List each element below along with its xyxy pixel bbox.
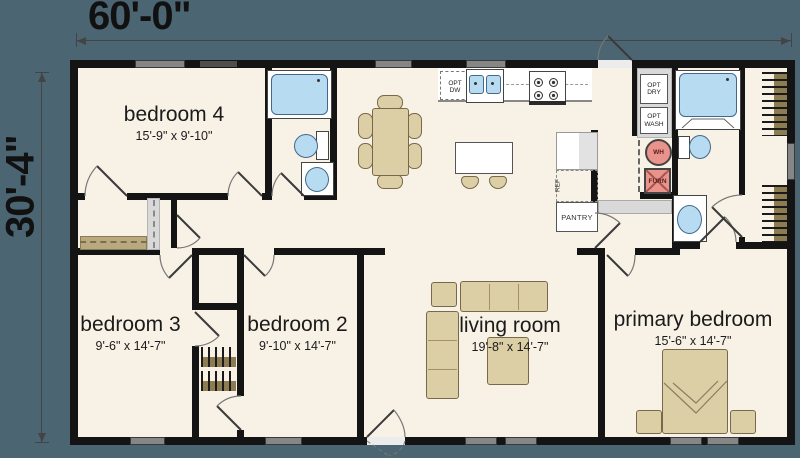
room-dims: 15'-6" x 14'-7" bbox=[603, 334, 783, 348]
door-arc bbox=[177, 238, 200, 248]
door-leaf bbox=[97, 166, 127, 196]
door-arc bbox=[272, 173, 281, 196]
rear-door-leaf bbox=[608, 36, 632, 60]
height-arrow-down-icon bbox=[38, 433, 46, 442]
door-leaf bbox=[700, 217, 725, 242]
height-arrow-up-icon bbox=[38, 73, 46, 82]
room-label-living-room: living room 19'-8" x 14'-7" bbox=[420, 314, 600, 354]
floor-plan: 60'-0" 30'-4" bedroom 4 15'-9" x 9'-10" … bbox=[0, 0, 800, 458]
door-leaf bbox=[217, 406, 241, 430]
height-dimension-label: 30'-4" bbox=[2, 88, 40, 238]
door-leaf bbox=[238, 172, 262, 196]
front-door-outswing-arc bbox=[389, 441, 405, 456]
door-leaf bbox=[281, 173, 304, 196]
room-dims: 19'-8" x 14'-7" bbox=[420, 340, 600, 354]
room-name: bedroom 3 bbox=[48, 313, 213, 337]
door-leaf bbox=[607, 255, 628, 276]
room-label-bedroom-2: bedroom 2 9'-10" x 14'-7" bbox=[215, 313, 380, 353]
room-label-bedroom-3: bedroom 3 9'-6" x 14'-7" bbox=[48, 313, 213, 353]
room-name: living room bbox=[420, 314, 600, 338]
room-name: bedroom 4 bbox=[84, 103, 264, 127]
door-leaf bbox=[177, 215, 200, 238]
room-dims: 15'-9" x 9'-10" bbox=[84, 129, 264, 143]
door-leaf bbox=[595, 223, 620, 248]
front-door-leaf bbox=[367, 410, 394, 437]
room-dims: 9'-6" x 14'-7" bbox=[48, 339, 213, 353]
door-arc bbox=[712, 195, 742, 207]
room-name: primary bedroom bbox=[603, 308, 783, 332]
rear-door-arc bbox=[598, 36, 608, 60]
bed-blanket-fold bbox=[664, 381, 727, 413]
front-door-arc bbox=[394, 410, 405, 437]
room-label-bedroom-4: bedroom 4 15'-9" x 9'-10" bbox=[84, 103, 264, 143]
room-label-primary-bedroom: primary bedroom 15'-6" x 14'-7" bbox=[603, 308, 783, 348]
width-arrow-left-icon bbox=[77, 37, 86, 45]
door-arc bbox=[628, 255, 635, 276]
tub-apron-line bbox=[682, 119, 734, 128]
door-arc bbox=[265, 255, 274, 276]
bed-blanket-fold bbox=[673, 381, 718, 403]
door-arc bbox=[217, 396, 241, 406]
door-leaf bbox=[244, 255, 265, 276]
room-dims: 9'-10" x 14'-7" bbox=[215, 339, 380, 353]
front-door-outswing-leaf bbox=[367, 441, 389, 456]
room-name: bedroom 2 bbox=[215, 313, 380, 337]
door-arc bbox=[160, 255, 169, 278]
width-arrow-right-icon bbox=[781, 37, 790, 45]
door-arc bbox=[595, 213, 620, 223]
width-dimension-label: 60'-0" bbox=[88, 0, 191, 39]
door-arc bbox=[85, 166, 97, 196]
door-leaf bbox=[712, 207, 742, 237]
door-swing-overlay bbox=[0, 0, 800, 458]
door-leaf bbox=[169, 255, 192, 278]
door-arc bbox=[228, 172, 238, 196]
